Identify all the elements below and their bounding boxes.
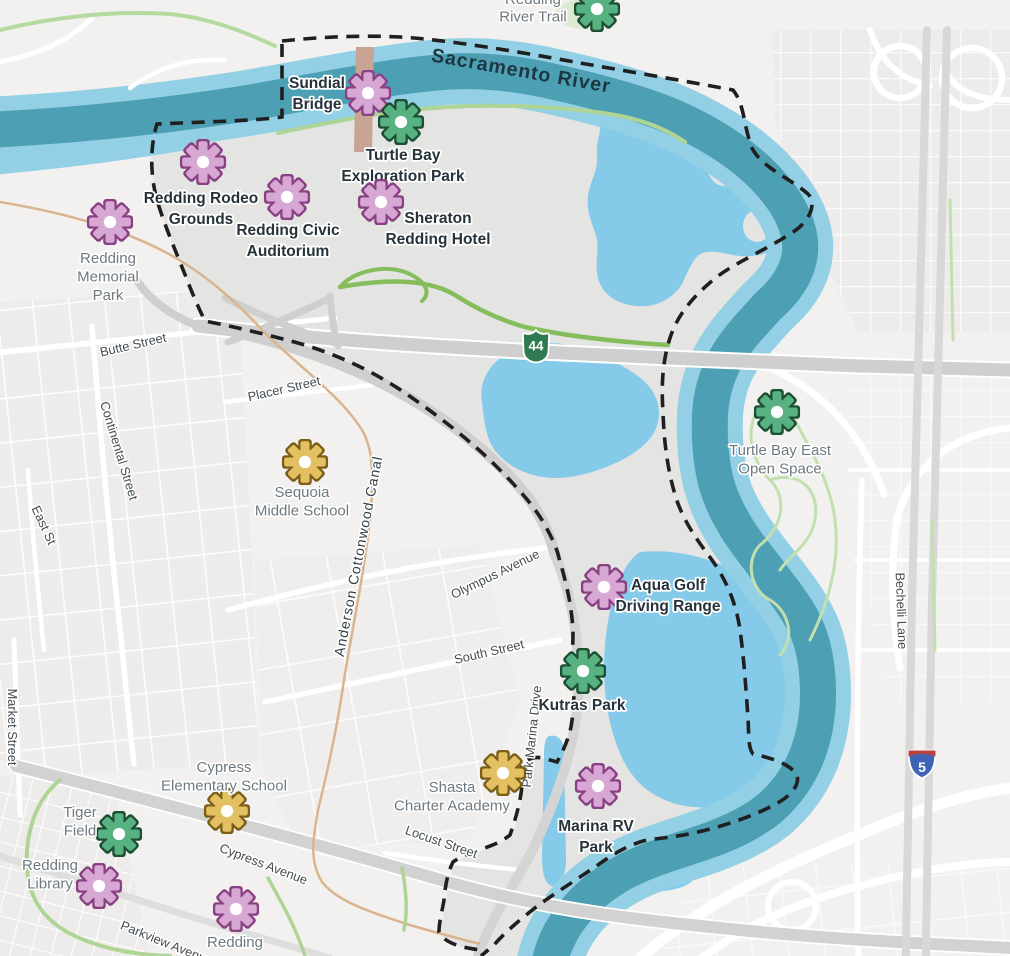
- poi-label-turtle-bay-east-open-space: Turtle Bay EastOpen Space: [729, 442, 832, 478]
- redding-map[interactable]: Sacramento River Anderson Cottonwood Can…: [0, 0, 1010, 956]
- poi-label-redding-library: ReddingLibrary: [22, 857, 78, 893]
- svg-text:44: 44: [528, 339, 544, 354]
- poi-icon-sheraton-redding-hotel[interactable]: [358, 179, 404, 225]
- poi-icon-shasta-charter-academy[interactable]: [480, 750, 526, 796]
- map-canvas[interactable]: Sacramento River Anderson Cottonwood Can…: [0, 0, 1010, 956]
- poi-icon-turtle-bay-east-open-space[interactable]: [754, 389, 800, 435]
- poi-icon-redding-rodeo-grounds[interactable]: [180, 139, 226, 185]
- poi-icon-turtle-bay-exploration-park[interactable]: [378, 99, 424, 145]
- poi-label-redding-south: Redding: [207, 934, 263, 951]
- poi-icon-redding-south[interactable]: [213, 886, 259, 932]
- svg-text:5: 5: [918, 759, 926, 775]
- poi-icon-tiger-field[interactable]: [96, 811, 142, 857]
- poi-icon-redding-memorial-park[interactable]: [87, 199, 133, 245]
- poi-icon-cypress-elementary-school[interactable]: [204, 788, 250, 834]
- poi-label-redding-river-trail: ReddingRiver Trail: [499, 0, 567, 26]
- poi-icon-marina-rv-park[interactable]: [575, 763, 621, 809]
- poi-label-kutras-park: Kutras Park: [538, 697, 625, 714]
- poi-label-tiger-field: TigerField: [63, 804, 97, 840]
- poi-icon-redding-civic-auditorium[interactable]: [264, 174, 310, 220]
- street-label-bechelli-lane: Bechelli Lane: [893, 572, 911, 649]
- poi-icon-kutras-park[interactable]: [560, 648, 606, 694]
- ca-44-shield: 44: [523, 330, 549, 363]
- street-label-market-street: Market Street: [5, 689, 20, 766]
- poi-icon-redding-library[interactable]: [76, 863, 122, 909]
- poi-icon-sequoia-middle-school[interactable]: [282, 439, 328, 485]
